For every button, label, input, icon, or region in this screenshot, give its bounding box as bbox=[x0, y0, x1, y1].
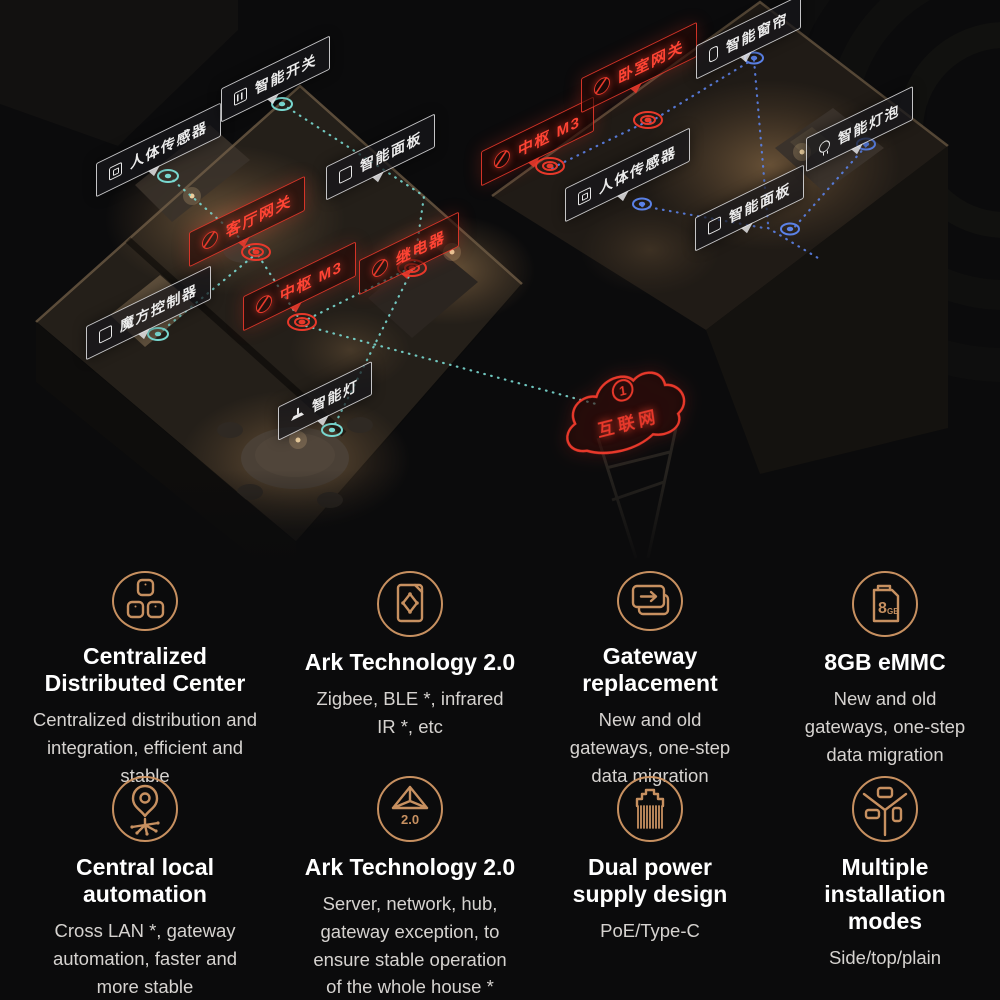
human-sensor-icon bbox=[109, 161, 122, 180]
feature-title: Dual power supply design bbox=[573, 854, 728, 908]
feature-title: Gateway replacement bbox=[582, 643, 718, 697]
feature-card-emmc: 8 GB 8GB eMMC New and old gateways, one-… bbox=[770, 571, 1000, 776]
smart-home-scene: 人体传感器 智能开关 智能面板 魔方控制器 智能灯 客厅网关 中枢 M3 继电 bbox=[0, 0, 1000, 565]
feature-description: PoE/Type-C bbox=[600, 917, 700, 945]
feature-card-centralized-center: Centralized Distributed Center Centraliz… bbox=[0, 571, 290, 776]
feature-description: Server, network, hub, gateway exception,… bbox=[313, 890, 506, 1000]
feature-title: Central local automation bbox=[76, 854, 214, 908]
svg-text:8: 8 bbox=[878, 600, 887, 617]
ark-document-icon bbox=[377, 571, 443, 637]
cube-icon bbox=[99, 324, 112, 343]
feature-card-dual-power: Dual power supply design PoE/Type-C bbox=[530, 776, 770, 1000]
panel-icon bbox=[339, 164, 352, 183]
product-infographic: 人体传感器 智能开关 智能面板 魔方控制器 智能灯 客厅网关 中枢 M3 继电 bbox=[0, 0, 1000, 1000]
ceiling-light-icon bbox=[291, 405, 304, 424]
switch-icon bbox=[234, 86, 247, 105]
feature-title: 8GB eMMC bbox=[824, 649, 945, 676]
feature-description: Zigbee, BLE *, infrared IR *, etc bbox=[316, 685, 503, 741]
svg-text:2.0: 2.0 bbox=[401, 812, 419, 827]
hub-device-icon bbox=[494, 147, 510, 171]
feature-description: New and old gateways, one-step data migr… bbox=[805, 685, 965, 768]
feature-card-installation-modes: Multiple installation modes Side/top/pla… bbox=[770, 776, 1000, 1000]
svg-text:GB: GB bbox=[887, 607, 899, 616]
feature-description: Side/top/plain bbox=[829, 944, 941, 972]
feature-card-gateway-replacement: Gateway replacement New and old gateways… bbox=[530, 571, 770, 776]
feature-title: Centralized Distributed Center bbox=[45, 643, 246, 697]
feature-card-ark-stability: 2.0 Ark Technology 2.0 Server, network, … bbox=[290, 776, 530, 1000]
gateway-device-icon bbox=[594, 74, 610, 98]
blocks-icon bbox=[112, 571, 178, 631]
install-modes-icon bbox=[852, 776, 918, 842]
floor-plan-illustration bbox=[0, 0, 1000, 565]
feature-description: Cross LAN *, gateway automation, faster … bbox=[53, 917, 237, 1000]
relay-device-icon bbox=[372, 256, 388, 280]
curtain-icon bbox=[709, 45, 718, 63]
feature-title: Ark Technology 2.0 bbox=[305, 854, 515, 881]
power-connector-icon bbox=[617, 776, 683, 842]
memory-card-icon: 8 GB bbox=[852, 571, 918, 637]
feature-card-local-automation: Central local automation Cross LAN *, ga… bbox=[0, 776, 290, 1000]
card-stack-icon bbox=[617, 571, 683, 631]
feature-title: Multiple installation modes bbox=[778, 854, 992, 935]
pin-network-icon bbox=[112, 776, 178, 842]
human-sensor-icon bbox=[578, 186, 591, 205]
feature-card-ark-protocols: Ark Technology 2.0 Zigbee, BLE *, infrar… bbox=[290, 571, 530, 776]
bulb-icon bbox=[819, 138, 830, 154]
feature-title: Ark Technology 2.0 bbox=[305, 649, 515, 676]
feature-grid: Centralized Distributed Center Centraliz… bbox=[0, 565, 1000, 1000]
panel-icon bbox=[708, 215, 721, 234]
hub-device-icon bbox=[256, 292, 272, 316]
pyramid-icon: 2.0 bbox=[377, 776, 443, 842]
gateway-device-icon bbox=[202, 228, 218, 252]
